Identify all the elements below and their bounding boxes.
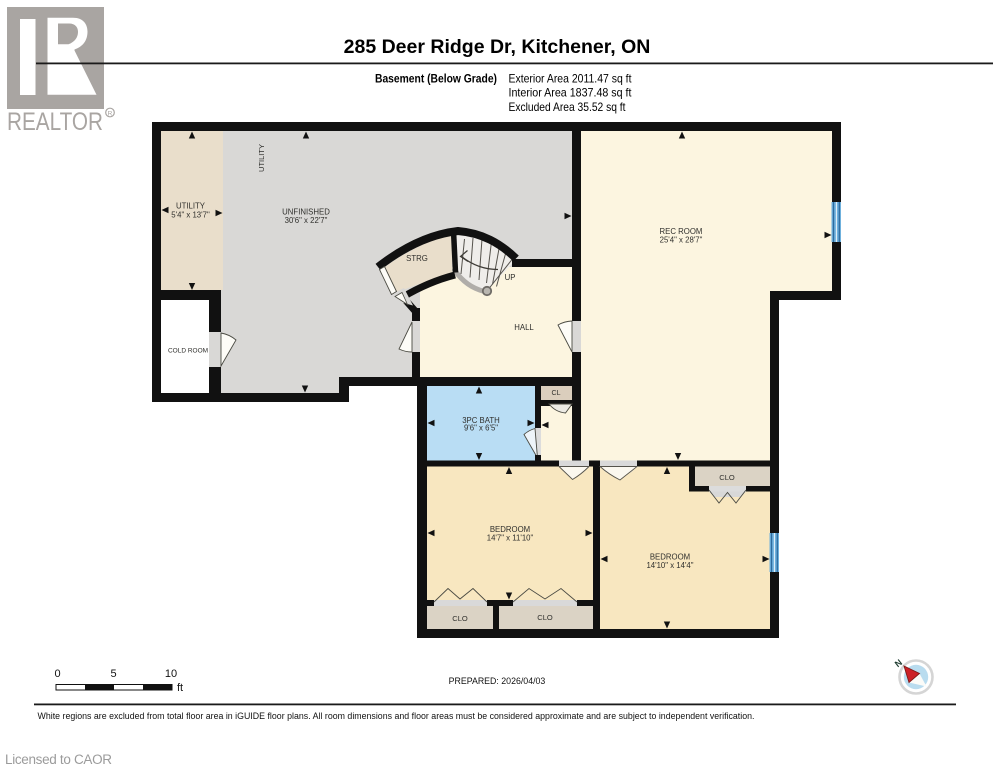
svg-text:14'10" x 14'4": 14'10" x 14'4" (646, 561, 693, 570)
svg-text:Exterior Area 2011.47 sq ft: Exterior Area 2011.47 sq ft (509, 72, 633, 86)
svg-text:White regions are excluded fro: White regions are excluded from total fl… (38, 711, 755, 721)
svg-text:UP: UP (505, 273, 516, 282)
svg-text:10: 10 (165, 668, 177, 680)
svg-text:Excluded Area 35.52 sq ft: Excluded Area 35.52 sq ft (509, 100, 627, 114)
svg-text:CL: CL (552, 390, 561, 397)
svg-text:HALL: HALL (514, 323, 534, 332)
svg-text:9'6" x 6'5": 9'6" x 6'5" (464, 424, 498, 433)
svg-text:CLO: CLO (719, 473, 735, 482)
svg-text:14'7" x 11'10": 14'7" x 11'10" (487, 534, 534, 543)
svg-text:STRG: STRG (406, 254, 428, 263)
svg-text:5'4" x 13'7": 5'4" x 13'7" (171, 211, 210, 220)
svg-text:PREPARED: 2026/04/03: PREPARED: 2026/04/03 (449, 676, 546, 686)
svg-text:0: 0 (54, 668, 60, 680)
svg-text:285 Deer Ridge Dr, Kitchener,: 285 Deer Ridge Dr, Kitchener, ON (344, 36, 651, 58)
svg-text:REALTOR: REALTOR (7, 108, 103, 136)
svg-text:R: R (108, 110, 113, 117)
svg-text:UTILITY: UTILITY (257, 144, 266, 172)
svg-text:COLD ROOM: COLD ROOM (168, 348, 208, 355)
svg-text:CLO: CLO (537, 613, 553, 622)
svg-text:CLO: CLO (452, 614, 468, 623)
svg-text:Interior Area 1837.48 sq ft: Interior Area 1837.48 sq ft (509, 85, 633, 99)
svg-text:30'6" x 22'7": 30'6" x 22'7" (285, 216, 328, 225)
svg-text:ft: ft (177, 682, 183, 694)
svg-text:25'4" x 28'7": 25'4" x 28'7" (660, 236, 703, 245)
svg-text:5: 5 (110, 668, 116, 680)
svg-text:Basement (Below Grade): Basement (Below Grade) (375, 72, 497, 86)
svg-text:Licensed to CAOR: Licensed to CAOR (5, 752, 112, 767)
svg-text:UTILITY: UTILITY (176, 202, 206, 211)
